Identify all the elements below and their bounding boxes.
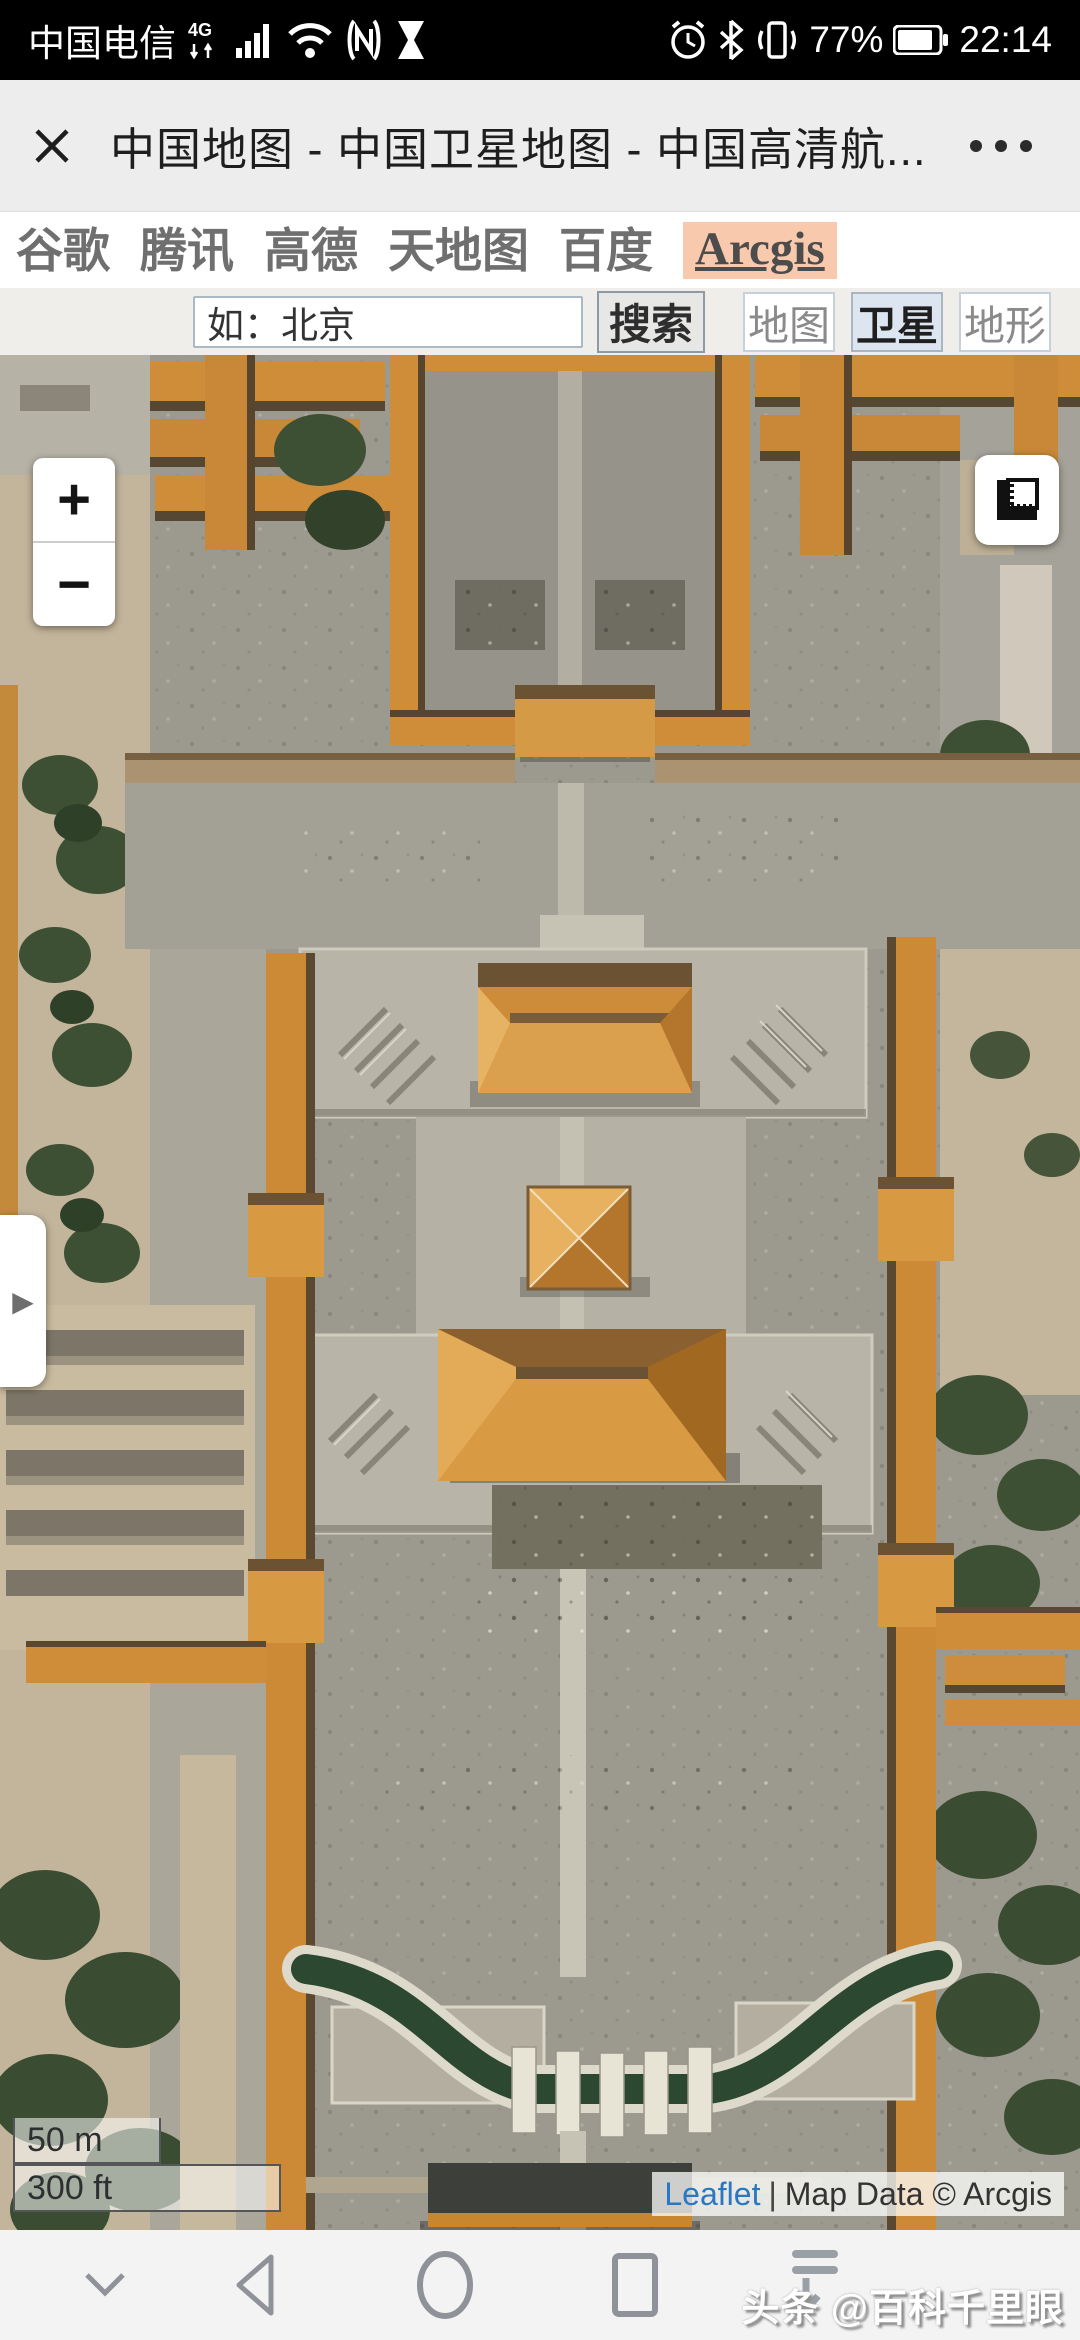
- signal-4g-icon: 4G: [186, 18, 224, 62]
- status-bar: 中国电信 4G: [0, 0, 1080, 80]
- more-menu-icon[interactable]: [970, 140, 1032, 152]
- signal-bars-icon: [234, 20, 276, 60]
- qianqing-compound: [390, 355, 750, 762]
- layer-switcher: 地图 卫星 地形: [743, 292, 1051, 352]
- clock-time: 22:14: [959, 19, 1052, 61]
- ruler-icon: [991, 474, 1043, 526]
- tab-arcgis[interactable]: Arcgis: [683, 222, 837, 279]
- status-left: 中国电信 4G: [28, 13, 428, 67]
- measure-control[interactable]: [975, 455, 1059, 545]
- back-button-icon[interactable]: [227, 2251, 283, 2319]
- sidebar-toggle[interactable]: ▶: [0, 1215, 46, 1387]
- layer-button-satellite[interactable]: 卫星: [851, 292, 943, 352]
- search-input[interactable]: [193, 296, 583, 348]
- status-right: 77% 22:14: [667, 19, 1052, 61]
- zoom-control: + −: [33, 458, 115, 626]
- wifi-icon: [286, 20, 334, 60]
- hide-navbar-chevron-icon[interactable]: [75, 2265, 135, 2305]
- phone-screen: 中国电信 4G: [0, 0, 1080, 2340]
- close-icon[interactable]: [30, 124, 74, 168]
- layer-button-map[interactable]: 地图: [743, 292, 835, 352]
- tab-tencent[interactable]: 腾讯: [140, 227, 234, 274]
- search-toolbar: 搜索 地图 卫星 地形: [0, 288, 1080, 355]
- satellite-imagery[interactable]: [0, 355, 1080, 2230]
- scale-bar-imperial: 300 ft: [13, 2164, 281, 2212]
- tab-baidu[interactable]: 百度: [559, 227, 653, 274]
- attribution-separator: |: [768, 2176, 776, 2213]
- attribution-credit: Map Data © Arcgis: [785, 2176, 1052, 2213]
- baohe-hall: [470, 963, 700, 1107]
- carrier-label: 中国电信: [28, 13, 176, 67]
- hourglass-icon: [394, 19, 428, 61]
- map-viewport[interactable]: + − ▶ 50 m 300 ft Leaflet |: [0, 355, 1080, 2230]
- tab-gaode[interactable]: 高德: [264, 227, 358, 274]
- alarm-clock-icon: [667, 19, 709, 61]
- android-nav-bar: 头条 @百科千里眼: [0, 2230, 1080, 2340]
- map-attribution: Leaflet | Map Data © Arcgis: [652, 2172, 1064, 2216]
- tab-google[interactable]: 谷歌: [16, 227, 110, 274]
- scale-bar-metric: 50 m: [13, 2118, 161, 2164]
- page-title: 中国地图 - 中国卫星地图 - 中国高清航...: [110, 113, 970, 178]
- battery-icon: [893, 25, 949, 55]
- bluetooth-icon: [719, 19, 745, 61]
- recents-button-icon[interactable]: [607, 2250, 663, 2320]
- nfc-icon: [344, 19, 384, 61]
- layer-button-terrain[interactable]: 地形: [959, 292, 1051, 352]
- tab-tianditu[interactable]: 天地图: [388, 227, 529, 274]
- search-button[interactable]: 搜索: [597, 291, 705, 353]
- zoom-in-button[interactable]: +: [33, 458, 115, 543]
- zoom-out-button[interactable]: −: [33, 543, 115, 626]
- vibrate-icon: [755, 19, 799, 61]
- leaflet-link[interactable]: Leaflet: [664, 2176, 760, 2213]
- svg-text:4G: 4G: [188, 20, 212, 40]
- browser-title-bar: 中国地图 - 中国卫星地图 - 中国高清航...: [0, 80, 1080, 212]
- battery-percent: 77%: [809, 19, 883, 61]
- chevron-right-icon: ▶: [12, 1285, 34, 1318]
- map-provider-tabs: 谷歌 腾讯 高德 天地图 百度 Arcgis: [0, 212, 1080, 288]
- toutiao-watermark: 头条 @百科千里眼: [741, 2277, 1064, 2332]
- zhonghe-hall: [520, 1187, 650, 1297]
- home-button-icon[interactable]: [413, 2248, 477, 2322]
